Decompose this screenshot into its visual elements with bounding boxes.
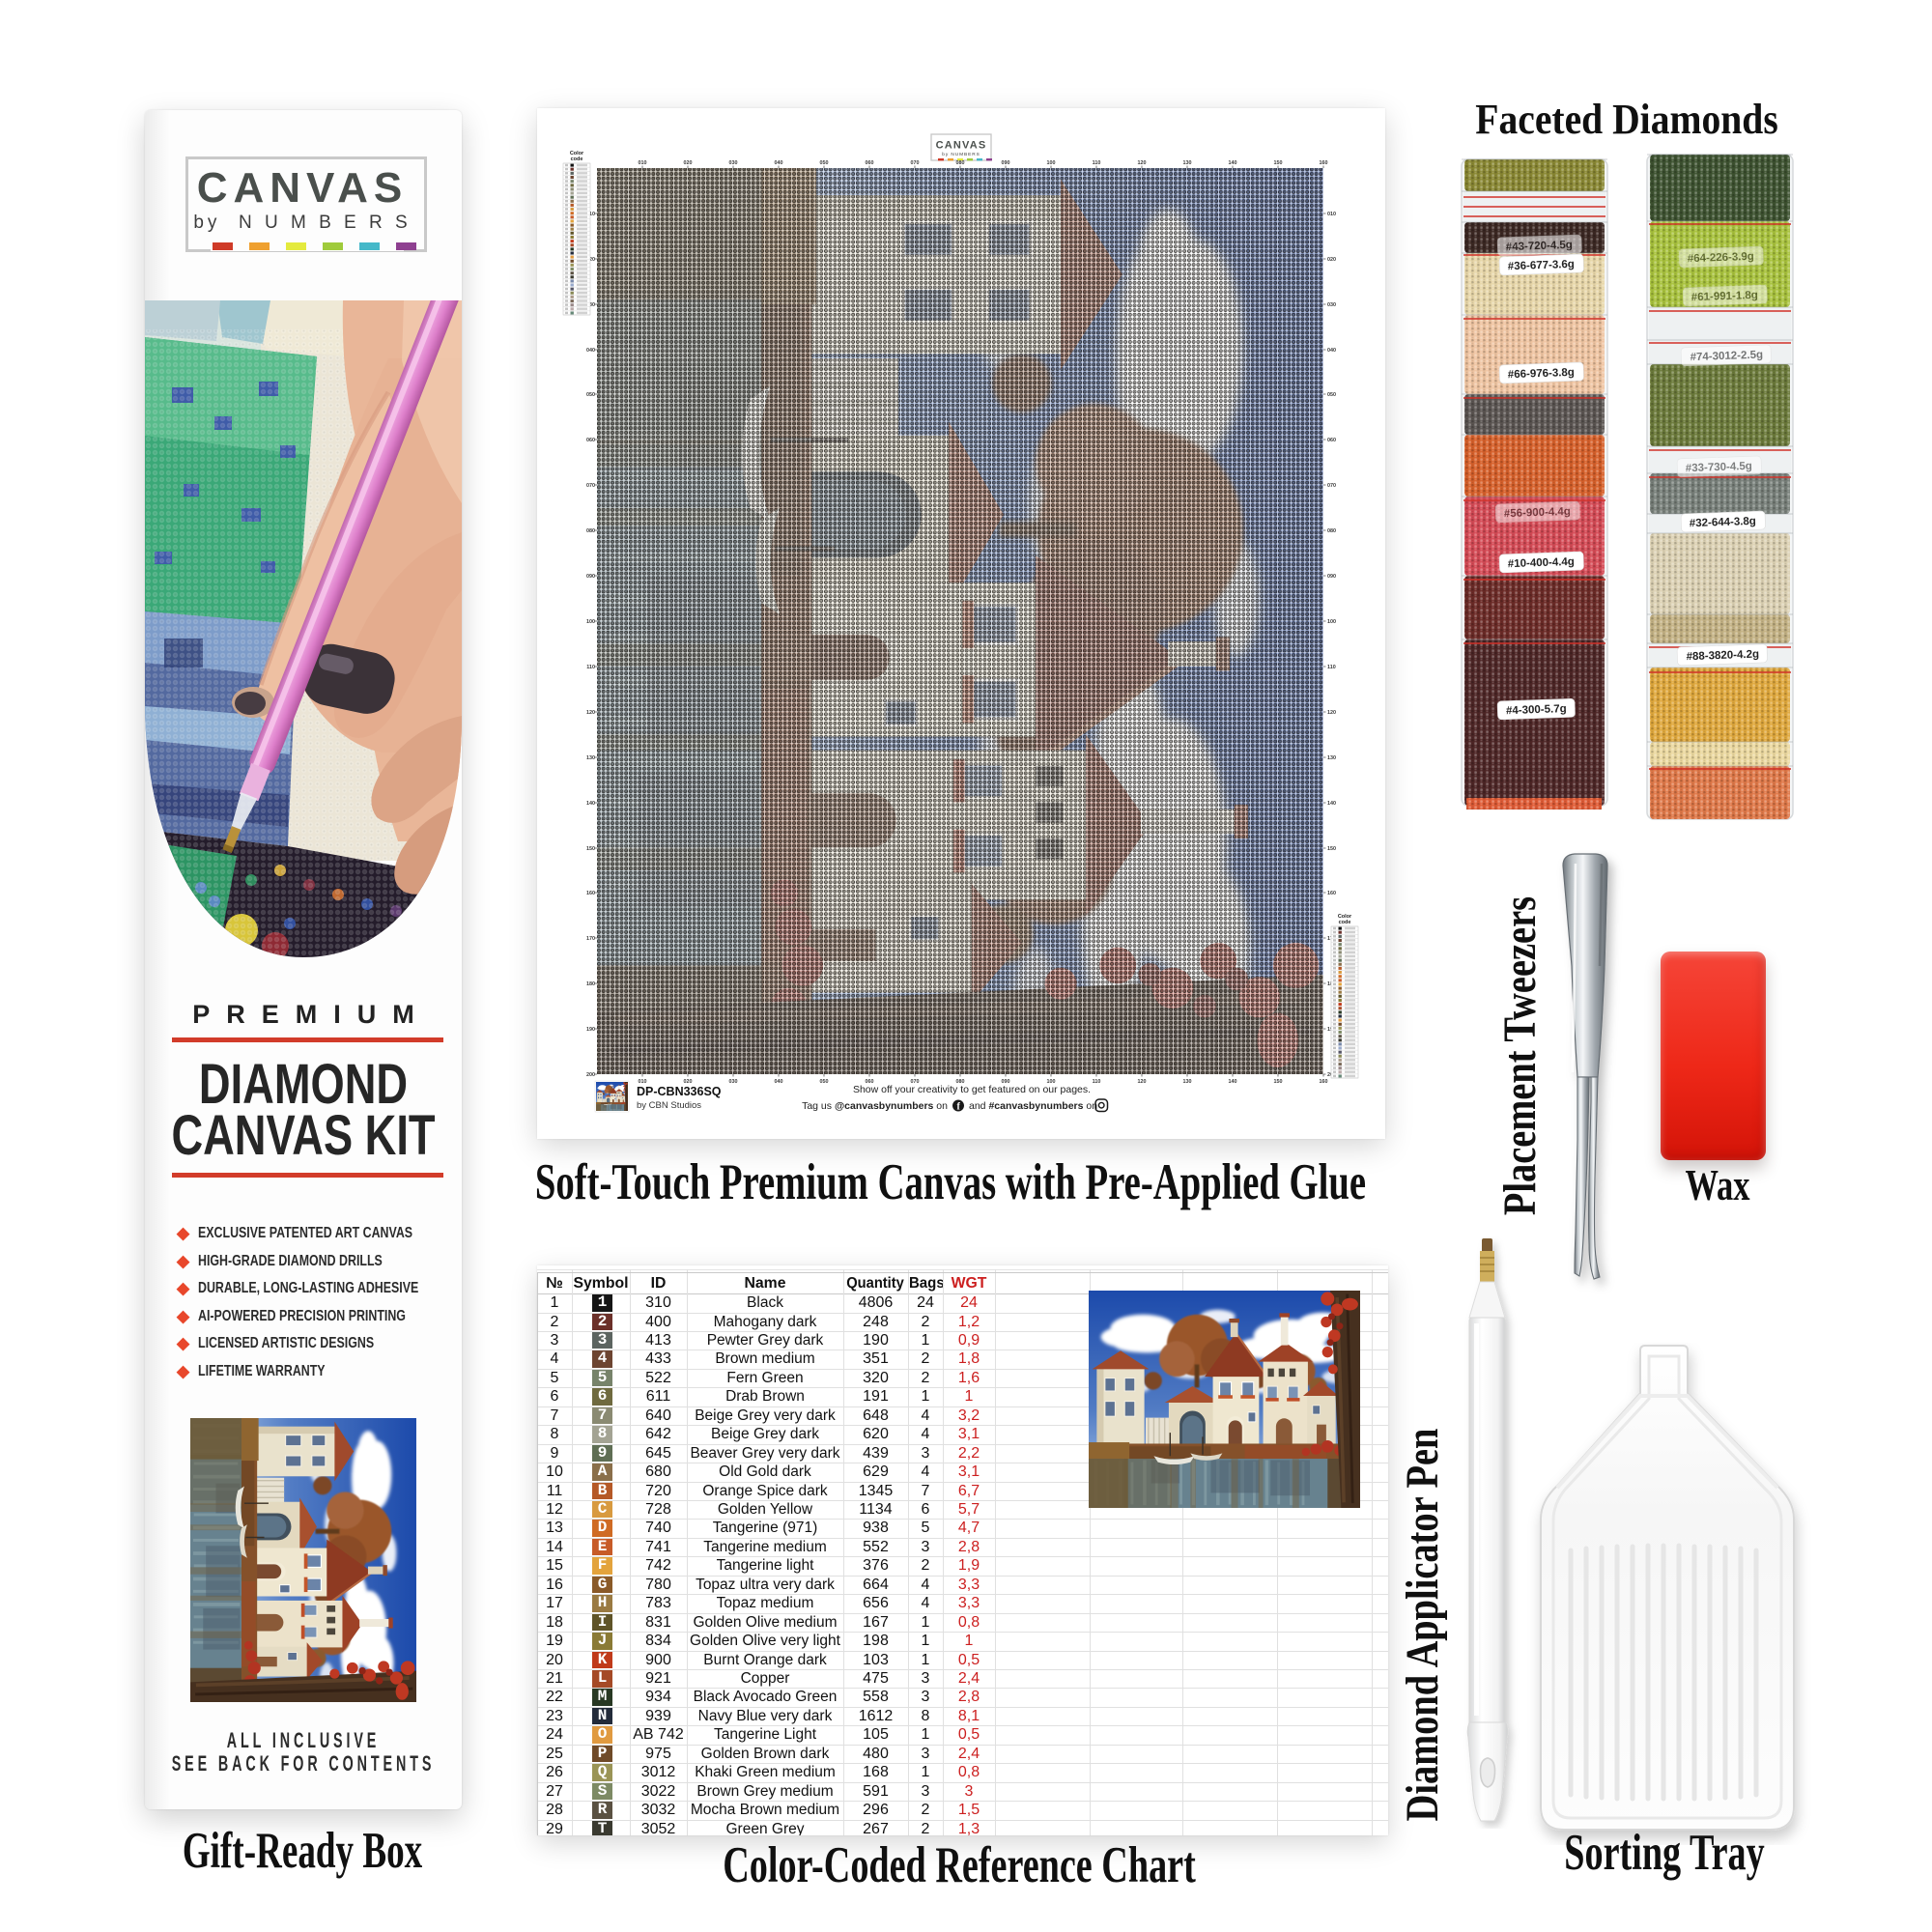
svg-text:#61-991-1.8g: #61-991-1.8g [1691,290,1758,303]
svg-text:#36-677-3.6g: #36-677-3.6g [1508,259,1575,272]
svg-text:by NUMBERS: by NUMBERS [942,152,980,157]
svg-text:#33-730-4.5g: #33-730-4.5g [1686,461,1752,474]
svg-text:110: 110 [586,665,595,670]
svg-text:180: 180 [586,981,595,987]
svg-text:100: 100 [1047,160,1056,166]
svg-text:110: 110 [1093,160,1101,166]
svg-text:#56-900-4.4g: #56-900-4.4g [1504,506,1571,520]
svg-text:160: 160 [1320,160,1328,166]
svg-text:100: 100 [1327,619,1336,625]
svg-text:120: 120 [1138,160,1147,166]
svg-text:060: 060 [586,438,595,443]
svg-text:120: 120 [1138,1079,1147,1085]
svg-text:#4-300-5.7g: #4-300-5.7g [1506,703,1567,717]
svg-text:160: 160 [1320,1079,1328,1085]
svg-text:120: 120 [1327,710,1336,716]
svg-text:160: 160 [586,891,595,896]
svg-text:170: 170 [586,936,595,942]
svg-text:050: 050 [820,1079,829,1085]
svg-text:120: 120 [586,710,595,716]
svg-text:070: 070 [1327,483,1336,489]
svg-text:code: code [1339,920,1351,925]
svg-text:Tag us @canvasbynumbers on: Tag us @canvasbynumbers on [802,1100,948,1112]
svg-text:040: 040 [586,348,595,354]
svg-text:by CBN Studios: by CBN Studios [637,1100,701,1111]
svg-text:020: 020 [684,160,693,166]
svg-text:Show off your creativity to g: Show off your creativity to get featured… [853,1084,1091,1095]
svg-text:080: 080 [956,160,965,166]
svg-text:020: 020 [1327,257,1336,263]
svg-text:090: 090 [1002,160,1010,166]
svg-text:150: 150 [1327,846,1336,852]
svg-text:110: 110 [1093,1079,1101,1085]
svg-text:140: 140 [1229,1079,1237,1085]
svg-text:200: 200 [586,1072,595,1078]
svg-text:050: 050 [820,160,829,166]
svg-text:050: 050 [586,392,595,398]
svg-text:110: 110 [1327,665,1336,670]
svg-text:and #canvasbynumbers on: and #canvasbynumbers on [969,1100,1097,1112]
svg-text:060: 060 [1327,438,1336,443]
svg-text:140: 140 [1327,801,1336,807]
svg-text:150: 150 [1274,160,1283,166]
svg-text:010: 010 [639,160,647,166]
svg-text:#10-400-4.4g: #10-400-4.4g [1508,556,1575,570]
svg-text:090: 090 [1327,574,1336,580]
svg-text:090: 090 [586,574,595,580]
svg-text:#66-976-3.8g: #66-976-3.8g [1508,367,1575,381]
svg-text:190: 190 [586,1027,595,1033]
svg-text:#32-644-3.8g: #32-644-3.8g [1690,516,1756,529]
svg-text:040: 040 [775,160,783,166]
svg-text:030: 030 [1327,302,1336,308]
svg-text:100: 100 [586,619,595,625]
svg-text:140: 140 [1229,160,1237,166]
svg-text:160: 160 [1327,891,1336,896]
svg-text:010: 010 [1327,212,1336,217]
svg-text:CANVAS: CANVAS [936,140,987,152]
svg-text:code: code [571,156,583,162]
svg-text:080: 080 [586,528,595,534]
svg-text:080: 080 [1327,528,1336,534]
svg-text:070: 070 [911,160,920,166]
svg-text:060: 060 [866,160,874,166]
svg-text:130: 130 [1327,755,1336,761]
svg-text:130: 130 [586,755,595,761]
svg-text:050: 050 [1327,392,1336,398]
svg-text:DP-CBN336SQ: DP-CBN336SQ [637,1085,722,1098]
svg-text:130: 130 [1183,160,1192,166]
svg-text:150: 150 [586,846,595,852]
svg-text:070: 070 [586,483,595,489]
svg-text:040: 040 [1327,348,1336,354]
svg-text:030: 030 [729,160,738,166]
svg-text:140: 140 [586,801,595,807]
svg-text:#43-720-4.5g: #43-720-4.5g [1506,240,1573,253]
svg-text:#64-226-3.9g: #64-226-3.9g [1688,251,1754,265]
svg-text:040: 040 [775,1079,783,1085]
svg-text:030: 030 [729,1079,738,1085]
svg-text:150: 150 [1274,1079,1283,1085]
svg-text:130: 130 [1183,1079,1192,1085]
